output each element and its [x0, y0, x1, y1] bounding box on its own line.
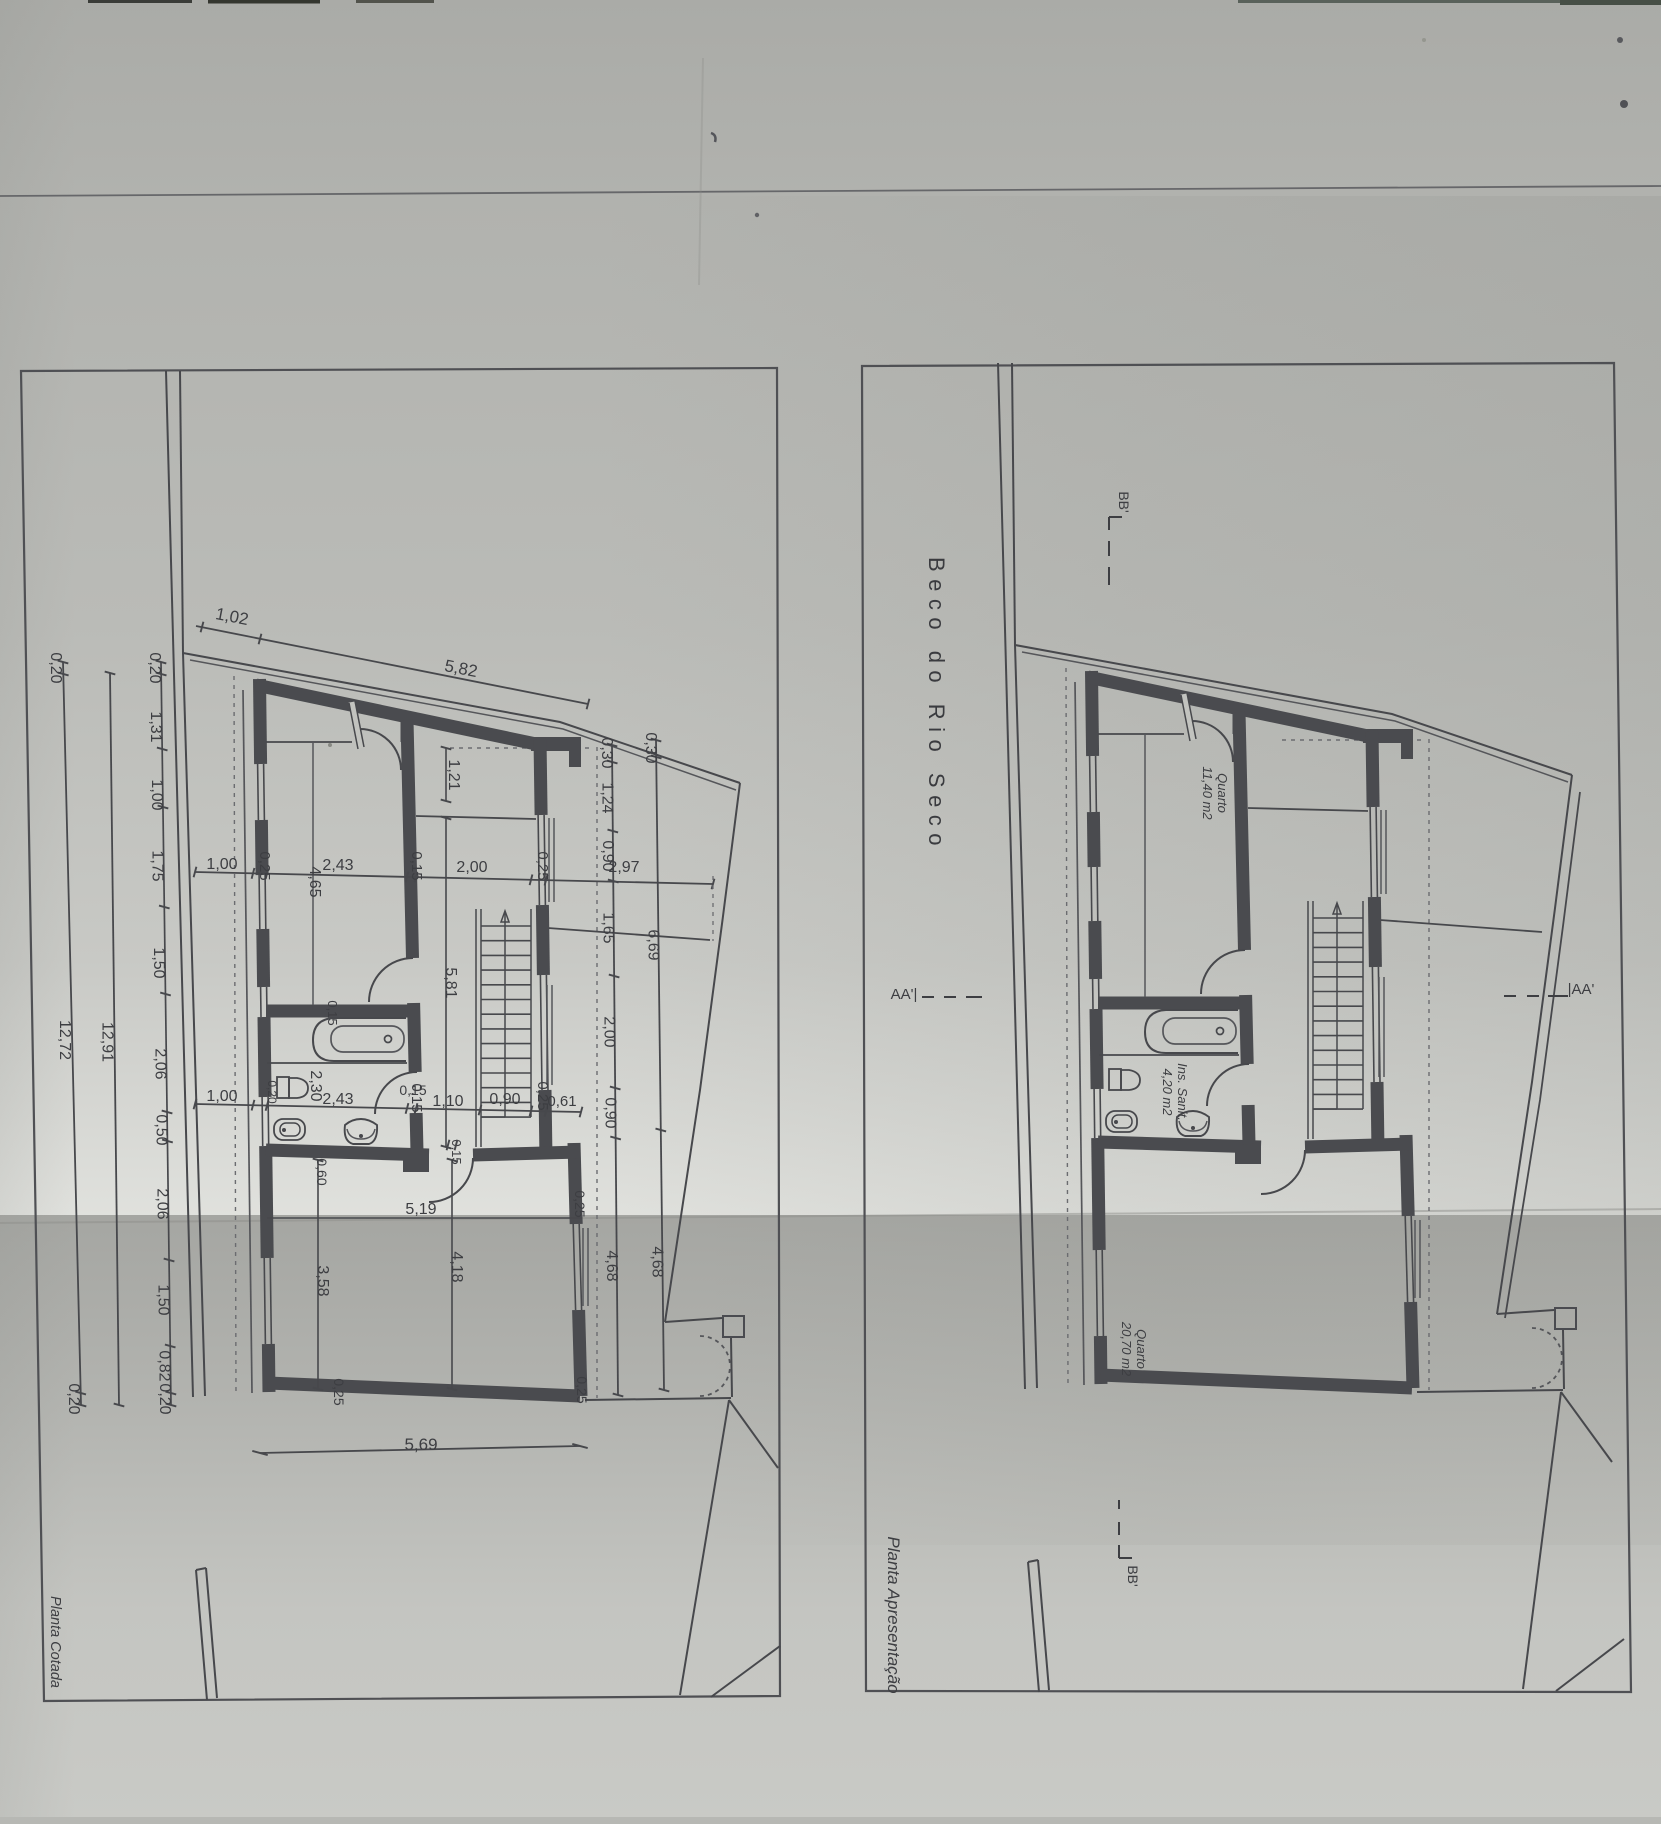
svg-text:0,20: 0,20: [146, 652, 163, 683]
svg-text:5,19: 5,19: [405, 1201, 436, 1218]
svg-text:20,70 m2: 20,70 m2: [1119, 1321, 1134, 1377]
svg-text:Ins. Sanit.: Ins. Sanit.: [1175, 1063, 1190, 1121]
svg-text:1,65: 1,65: [600, 912, 617, 943]
svg-text:Quarto: Quarto: [1215, 773, 1230, 813]
svg-text:0,61: 0,61: [547, 1093, 576, 1110]
svg-text:0,25: 0,25: [331, 1378, 347, 1405]
svg-text:0,20: 0,20: [65, 1383, 82, 1414]
svg-text:1,00: 1,00: [206, 1088, 237, 1105]
svg-text:0,30: 0,30: [598, 737, 615, 768]
svg-text:0,82: 0,82: [156, 1350, 173, 1381]
svg-text:Beco do Rio Seco: Beco do Rio Seco: [924, 557, 949, 853]
svg-text:0,15: 0,15: [408, 851, 425, 880]
svg-text:0,20: 0,20: [265, 1080, 279, 1104]
svg-text:4,68: 4,68: [648, 1246, 665, 1277]
svg-text:2,06: 2,06: [151, 1048, 168, 1079]
svg-text:BB': BB': [1116, 491, 1132, 512]
svg-text:1,21: 1,21: [445, 759, 462, 790]
svg-text:Quarto: Quarto: [1134, 1329, 1149, 1369]
svg-text:1,31: 1,31: [147, 711, 164, 742]
svg-text:2,97: 2,97: [608, 859, 639, 876]
svg-text:1,75: 1,75: [149, 850, 166, 881]
svg-text:12,72: 12,72: [56, 1020, 73, 1060]
svg-text:0,20: 0,20: [156, 1383, 173, 1414]
svg-text:1,00: 1,00: [148, 779, 165, 810]
svg-text:|AA': |AA': [1568, 981, 1595, 998]
svg-text:0,25: 0,25: [572, 1190, 588, 1217]
svg-text:2,43: 2,43: [322, 1091, 353, 1108]
svg-text:Planta Cotada: Planta Cotada: [47, 1596, 63, 1688]
svg-text:5,81: 5,81: [442, 967, 459, 998]
svg-text:AA'|: AA'|: [891, 986, 918, 1003]
svg-text:2,06: 2,06: [153, 1188, 170, 1219]
svg-text:11,40 m2: 11,40 m2: [1200, 766, 1215, 820]
svg-text:2,00: 2,00: [456, 859, 487, 876]
svg-text:1,24: 1,24: [599, 782, 616, 813]
svg-text:5,69: 5,69: [404, 1435, 437, 1454]
svg-text:4,20 m2: 4,20 m2: [1160, 1069, 1175, 1117]
svg-text:0,25: 0,25: [574, 1376, 590, 1403]
svg-text:2,43: 2,43: [322, 857, 353, 874]
svg-text:1,00: 1,00: [206, 856, 237, 873]
svg-text:3,58: 3,58: [314, 1265, 331, 1296]
svg-text:Planta Apresentação: Planta Apresentação: [884, 1536, 903, 1693]
svg-text:2,30: 2,30: [307, 1070, 324, 1101]
svg-text:0,90: 0,90: [489, 1091, 520, 1108]
svg-text:0,15: 0,15: [399, 1082, 426, 1098]
svg-text:12,91: 12,91: [99, 1022, 116, 1062]
svg-text:0,20: 0,20: [47, 652, 64, 683]
svg-text:0,50: 0,50: [152, 1114, 169, 1145]
svg-text:0,25: 0,25: [534, 851, 551, 880]
svg-text:2,00: 2,00: [601, 1016, 618, 1047]
svg-text:1,50: 1,50: [155, 1284, 172, 1315]
svg-text:6,69: 6,69: [645, 929, 662, 960]
svg-text:0,25: 0,25: [256, 851, 273, 880]
svg-text:4,18: 4,18: [448, 1251, 465, 1282]
svg-text:0,60: 0,60: [314, 1158, 330, 1185]
svg-text:1,50: 1,50: [150, 947, 167, 978]
svg-text:0,90: 0,90: [601, 1097, 618, 1128]
svg-text:1,10: 1,10: [432, 1093, 463, 1110]
svg-text:4,65: 4,65: [306, 866, 323, 897]
svg-text:0,15: 0,15: [325, 1000, 340, 1025]
svg-text:4,68: 4,68: [603, 1250, 620, 1281]
svg-text:BB': BB': [1125, 1565, 1141, 1586]
svg-text:0,30: 0,30: [642, 732, 659, 763]
